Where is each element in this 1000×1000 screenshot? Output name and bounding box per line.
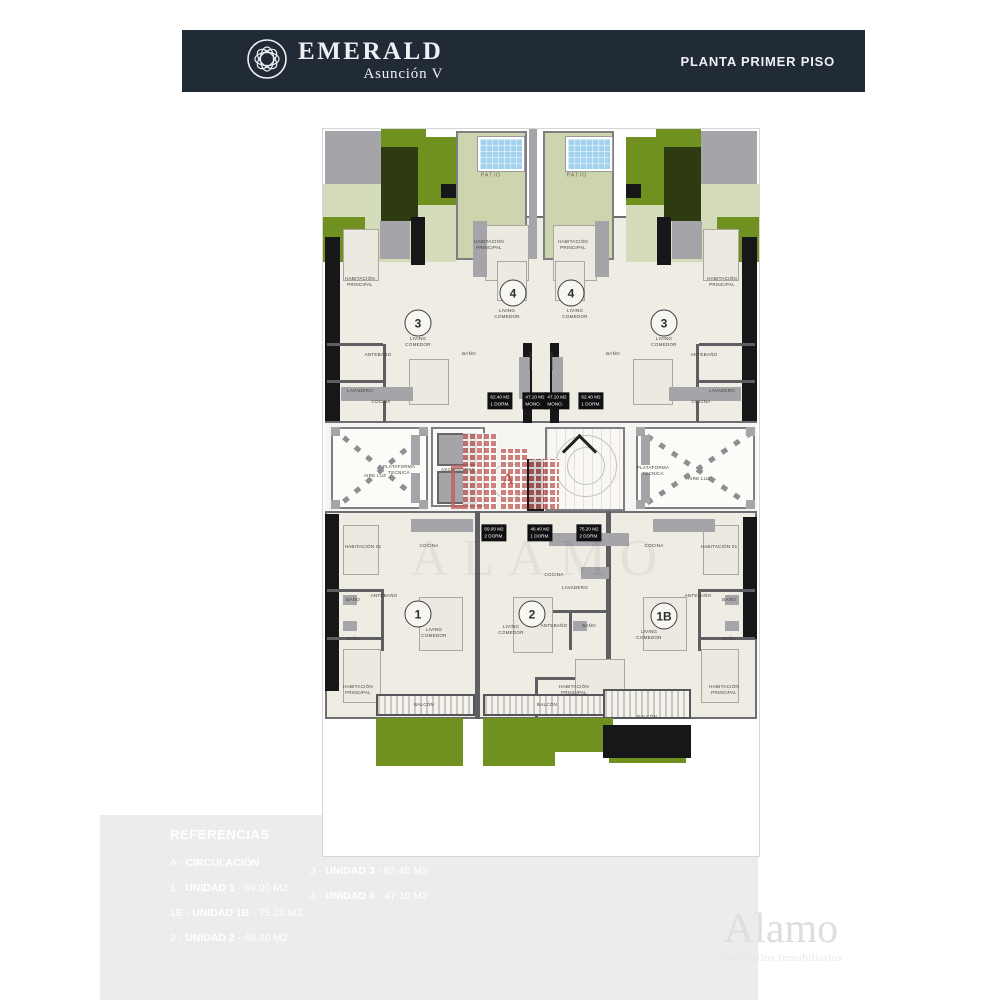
room-label: BALCÓN: [537, 702, 557, 708]
unit-badge: 2: [519, 601, 546, 628]
room-label: LAVADERO: [562, 585, 588, 591]
floor-plan: A ALAMO PATIOPATIOHABITACIÓN PRINCIPALHA…: [322, 128, 760, 857]
developer-name: Alamo: [695, 908, 867, 950]
room-label: HABITACIÓN PRINCIPAL: [709, 684, 739, 696]
room-label: LIVING COMEDOR: [636, 629, 661, 641]
area-chip: 62.40 M2 1 DORM.: [487, 392, 512, 409]
room-label: HABITACIÓN 01: [345, 544, 382, 550]
room-label: PATIO: [567, 172, 588, 179]
room-label: LIVING COMEDOR: [405, 336, 430, 348]
room-label: BAÑO: [346, 636, 360, 642]
room-label: LIVING COMEDOR: [421, 627, 446, 639]
room-label: COCINA: [644, 543, 663, 549]
room-label: LAVADERO: [347, 388, 373, 394]
references-column-1: A - CIRCULACIÓN1 - UNIDAD 1 - 69.00 M21B…: [170, 851, 302, 951]
room-label: HABITACIÓN PRINCIPAL: [474, 239, 504, 251]
emerald-emblem-icon: [246, 38, 288, 85]
room-label: BAÑO: [462, 351, 476, 357]
room-label: LIVING COMEDOR: [494, 308, 519, 320]
area-chip: 62.40 M2 1 DORM.: [578, 392, 603, 409]
room-label: LIVING COMEDOR: [498, 624, 523, 636]
room-label: HABITACIÓN PRINCIPAL: [343, 684, 373, 696]
room-label: ANTEBAÑO: [541, 623, 568, 629]
unit-badge: 4: [500, 280, 527, 307]
room-label: BAÑO: [722, 636, 736, 642]
room-label: BAÑO: [346, 597, 360, 603]
reference-item: A - CIRCULACIÓN: [170, 851, 302, 876]
room-label: HABITACIÓN PRINCIPAL: [345, 276, 375, 288]
room-label: BAÑO: [606, 351, 620, 357]
room-label: HABITACIÓN 01: [701, 544, 738, 550]
room-label: COCINA: [371, 399, 390, 405]
developer-logo: Alamo Desarrollos Inmobiliarios: [695, 908, 867, 964]
reference-item: 3 - UNIDAD 3 - 62.40 M2: [310, 859, 428, 884]
page: EMERALD Asunción V PLANTA PRIMER PISO: [0, 0, 1000, 1000]
brand-name: EMERALD: [298, 39, 443, 64]
room-label: ANTEBAÑO: [685, 593, 712, 599]
reference-item: 4 - UNIDAD 4 - 47.10 M2: [310, 884, 428, 909]
area-chip: 47.10 M2 MONO.: [544, 392, 569, 409]
room-label: HABITACIÓN PRINCIPAL: [558, 239, 588, 251]
unit-badge: 3: [405, 310, 432, 337]
room-label: PLATAFORMA TECNICA: [383, 464, 415, 476]
room-label: LAVADERO: [709, 388, 735, 394]
room-label: LIVING COMEDOR: [651, 336, 676, 348]
room-label: COCINA: [549, 351, 555, 370]
area-chip: 69.00 M2 2 DORM.: [481, 524, 506, 541]
reference-item: 1B - UNIDAD 1B - 75.20 M2: [170, 901, 302, 926]
plan-labels-layer: PATIOPATIOHABITACIÓN PRINCIPALHABITACIÓN…: [323, 129, 759, 856]
header-bar: EMERALD Asunción V PLANTA PRIMER PISO: [182, 30, 865, 92]
room-label: COCINA: [419, 543, 438, 549]
room-label: ASCENSORES: [441, 467, 475, 473]
room-label: ANTEBAÑO: [371, 593, 398, 599]
room-label: PLATAFORMA TECNICA: [637, 465, 669, 477]
unit-badge: 1: [405, 601, 432, 628]
room-label: HABITACIÓN PRINCIPAL: [559, 684, 589, 696]
unit-badge: 3: [651, 310, 678, 337]
room-label: PATIO: [481, 172, 502, 179]
area-chip: 75.20 M2 2 DORM.: [576, 524, 601, 541]
reference-item: 2 - UNIDAD 2 - 46.40 M2: [170, 926, 302, 951]
room-label: HABITACIÓN PRINCIPAL: [707, 276, 737, 288]
room-label: LIVING COMEDOR: [562, 308, 587, 320]
room-label: ANTEBAÑO: [691, 352, 718, 358]
brand-logo: EMERALD Asunción V: [246, 38, 443, 85]
developer-tagline: Desarrollos Inmobiliarios: [695, 953, 867, 964]
brand-text: EMERALD Asunción V: [298, 39, 443, 83]
room-label: BAÑO: [582, 623, 596, 629]
reference-item: 1 - UNIDAD 1 - 69.00 M2: [170, 876, 302, 901]
room-label: COCINA: [544, 572, 563, 578]
room-label: ANTEBAÑO: [365, 352, 392, 358]
references-column-2: 3 - UNIDAD 3 - 62.40 M24 - UNIDAD 4 - 47…: [310, 859, 428, 909]
room-label: AIRE LUZ: [688, 476, 710, 482]
room-label: COCINA: [691, 399, 710, 405]
room-label: BALCÓN: [414, 702, 434, 708]
unit-badge: 4: [558, 280, 585, 307]
room-label: COCINA: [528, 351, 534, 370]
brand-subtitle: Asunción V: [298, 66, 443, 83]
page-title: PLANTA PRIMER PISO: [680, 54, 835, 69]
room-label: BAÑO: [722, 597, 736, 603]
unit-badge: 1B: [651, 603, 678, 630]
room-label: AIRE LUZ: [364, 473, 386, 479]
area-chip: 46.40 M2 1 DORM.: [527, 524, 552, 541]
room-label: BALCÓN: [637, 714, 657, 720]
references-title: REFERENCIAS: [170, 827, 270, 842]
